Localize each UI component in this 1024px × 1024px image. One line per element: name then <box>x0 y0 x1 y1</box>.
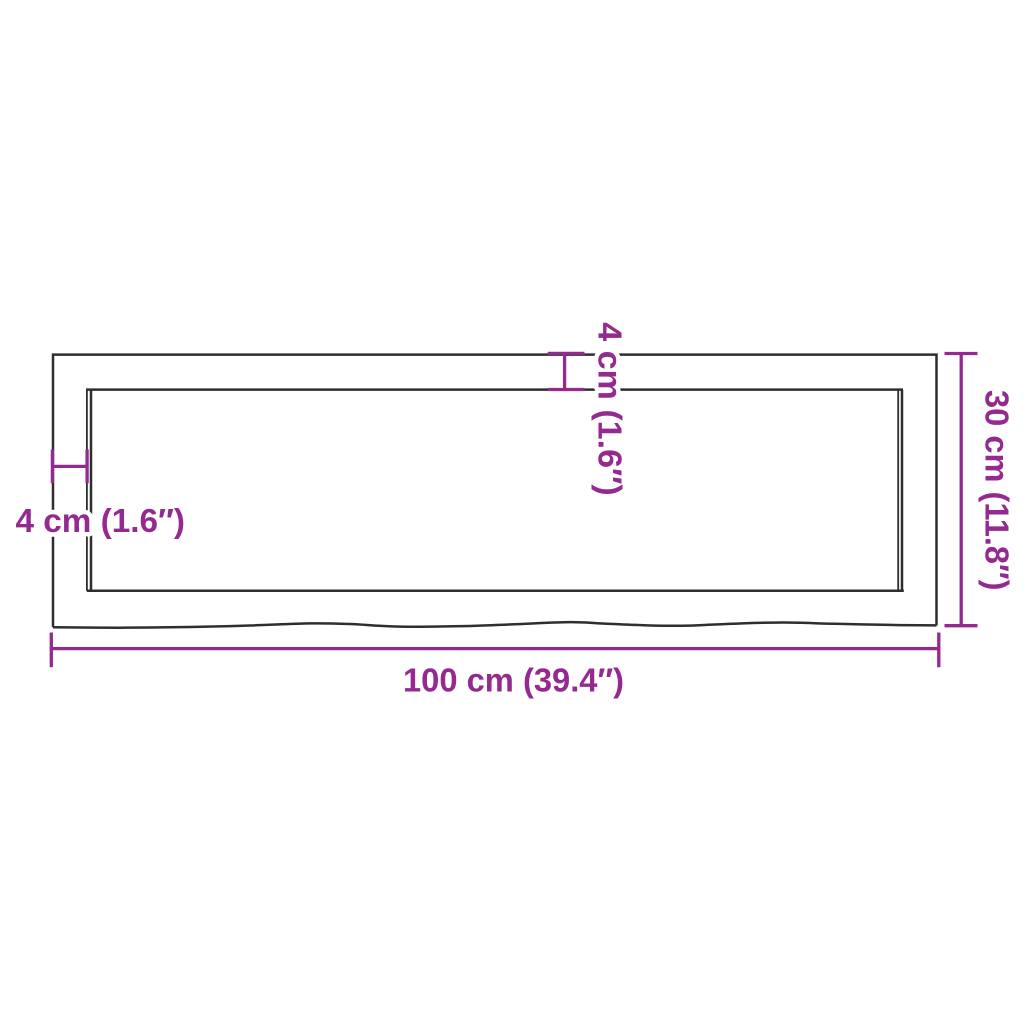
svg-text:30 cm (11.8″): 30 cm (11.8″) <box>979 390 1016 591</box>
svg-text:100 cm (39.4″): 100 cm (39.4″) <box>403 661 624 698</box>
svg-text:4 cm (1.6″): 4 cm (1.6″) <box>592 322 629 496</box>
svg-text:4 cm (1.6″): 4 cm (1.6″) <box>16 502 185 539</box>
